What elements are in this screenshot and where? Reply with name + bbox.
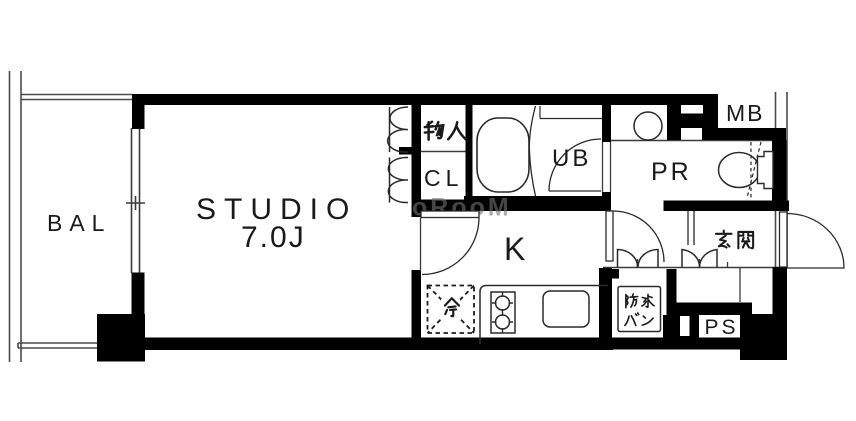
svg-text:BAL: BAL (47, 210, 111, 236)
svg-text:CL: CL (424, 165, 463, 191)
svg-text:PR: PR (651, 158, 692, 186)
svg-text:K: K (504, 231, 525, 267)
svg-text:PS: PS (705, 316, 739, 339)
svg-text:MB: MB (726, 100, 765, 126)
svg-text:7.0J: 7.0J (241, 221, 306, 254)
svg-text:UB: UB (552, 145, 591, 172)
